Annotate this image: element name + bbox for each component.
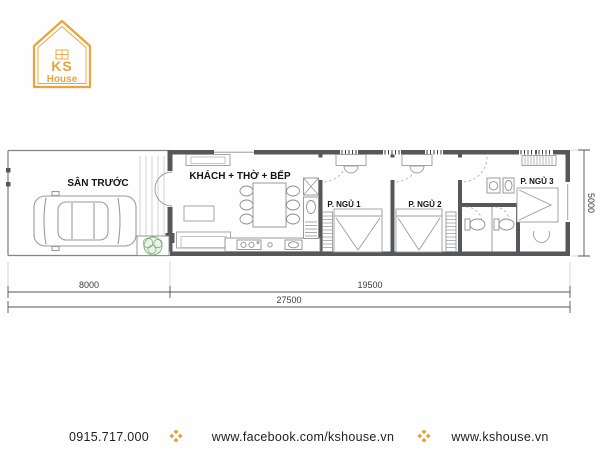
chair-icon xyxy=(410,166,424,173)
toilet-tank-icon xyxy=(494,219,499,230)
drawing-sheet: KS House SÂN TRƯỚC xyxy=(0,0,600,450)
car-icon xyxy=(34,192,136,251)
bed xyxy=(396,209,442,252)
footer-phone: 0915.717.000 xyxy=(69,430,149,444)
wardrobe xyxy=(323,212,333,252)
altar-inner xyxy=(191,157,225,164)
chair-icon xyxy=(534,231,550,242)
toilet-icon xyxy=(499,219,514,230)
front-yard-label: SÂN TRƯỚC xyxy=(67,176,128,189)
footer: 0915.717.000 www.facebook.com/kshouse.vn… xyxy=(69,429,549,444)
logo-brand-top: KS xyxy=(51,58,72,74)
dining-chair-icon xyxy=(287,214,300,224)
floor-plan-drawing: KS House SÂN TRƯỚC xyxy=(0,0,600,450)
dining-chair-icon xyxy=(240,186,253,196)
footer-website-url: www.kshouse.vn xyxy=(450,430,548,444)
dim-front-yard-width: 8000 xyxy=(79,280,99,290)
living-kitchen-label: KHÁCH + THỜ + BẾP xyxy=(189,169,291,182)
living-kitchen-room: KHÁCH + THỜ + BẾP xyxy=(177,155,321,252)
ks-house-logo: KS House xyxy=(34,21,90,87)
chair-icon xyxy=(344,166,358,173)
bedroom-2-label: P. NGỦ 2 xyxy=(408,200,442,209)
footer-facebook-url: www.facebook.com/kshouse.vn xyxy=(211,430,395,444)
toilet-icon xyxy=(470,219,485,230)
sink-icon xyxy=(307,201,316,214)
dim-house-length: 19500 xyxy=(357,280,382,290)
dining-chair-icon xyxy=(240,200,253,210)
bedroom-1: P. NGỦ 1 xyxy=(323,155,383,253)
logo-brand-bottom: House xyxy=(47,74,78,85)
partition-wall-stub xyxy=(319,155,323,158)
gate-post-icon xyxy=(6,168,11,173)
entrance xyxy=(137,156,172,256)
dim-total-length: 27500 xyxy=(276,295,301,305)
wardrobe xyxy=(522,156,556,166)
bathroom-wall-horizontal xyxy=(462,203,516,207)
desk xyxy=(402,155,432,166)
front-wall-stub xyxy=(168,150,173,171)
partition-bed1-bed2 xyxy=(391,180,395,252)
partition-wall-stub xyxy=(391,155,395,158)
double-door-icon xyxy=(155,172,172,206)
bedroom-1-label: P. NGỦ 1 xyxy=(327,200,361,209)
bedroom-3: P. NGỦ 3 xyxy=(517,156,558,243)
sofa-seat xyxy=(181,237,226,248)
dim-plot-depth: 5000 xyxy=(586,193,596,213)
dining-chair-icon xyxy=(287,186,300,196)
dining-table xyxy=(253,183,286,227)
desk xyxy=(336,155,366,166)
dining-set xyxy=(240,183,300,227)
plant-icon xyxy=(143,237,162,255)
gate-post-icon xyxy=(6,182,11,187)
bedroom-3-label: P. NGỦ 3 xyxy=(520,177,554,186)
wardrobe xyxy=(446,212,456,252)
extension-lines xyxy=(8,262,570,295)
bed xyxy=(334,209,382,252)
diamond-separator-icon xyxy=(417,429,430,442)
diamond-separator-icon xyxy=(169,429,182,442)
toilet-tank-icon xyxy=(465,219,470,230)
partition-bed2-bath xyxy=(458,180,462,252)
dining-chair-icon xyxy=(240,214,253,224)
door-swing-icon xyxy=(462,157,487,182)
partition-wall-stub xyxy=(458,155,462,158)
bedroom-2: P. NGỦ 2 xyxy=(395,155,457,253)
coffee-table xyxy=(184,206,214,221)
dining-chair-icon xyxy=(287,200,300,210)
extension-lines xyxy=(571,150,588,256)
